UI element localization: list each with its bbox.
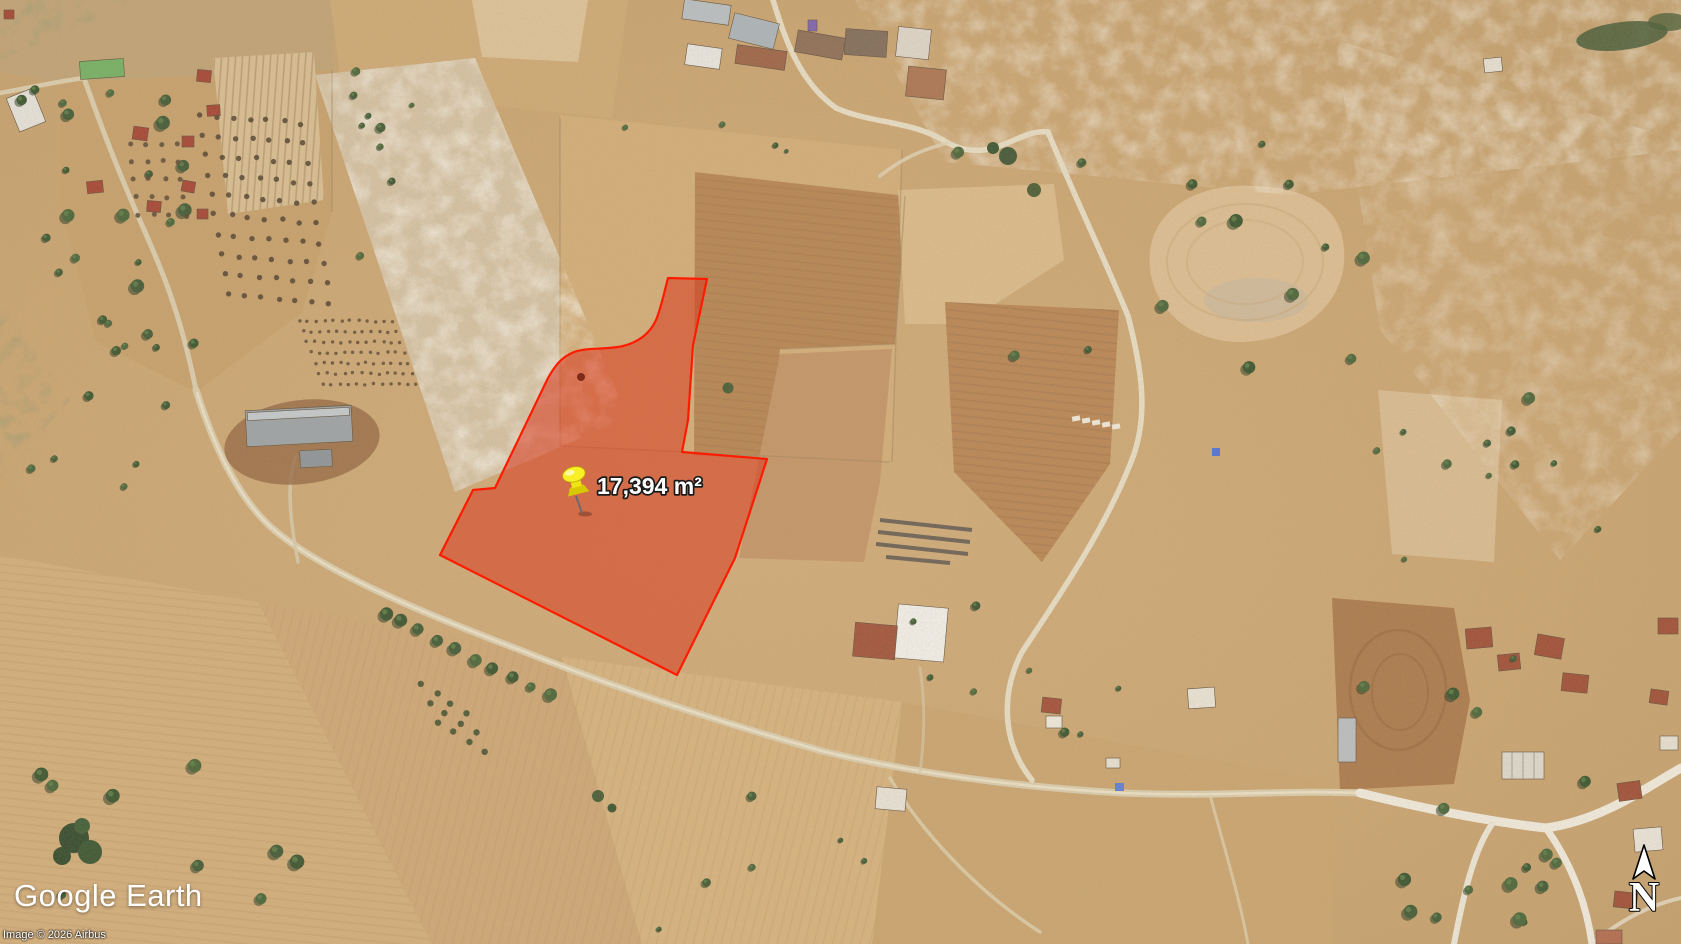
north-label: N (1629, 875, 1659, 921)
imagery-speckle (0, 0, 1681, 944)
pin-shadow (578, 512, 592, 517)
google-earth-logo: Google Earth (14, 878, 203, 914)
imagery-attribution: Image © 2026 Airbus (3, 929, 106, 941)
satellite-map[interactable]: 17,394 m² N (0, 0, 1681, 944)
parcel-area-label: 17,394 m² (597, 473, 702, 499)
google-earth-viewport[interactable]: 17,394 m² N Google Earth Image © 2026 Ai… (0, 0, 1681, 944)
parcel-hole (577, 373, 585, 381)
